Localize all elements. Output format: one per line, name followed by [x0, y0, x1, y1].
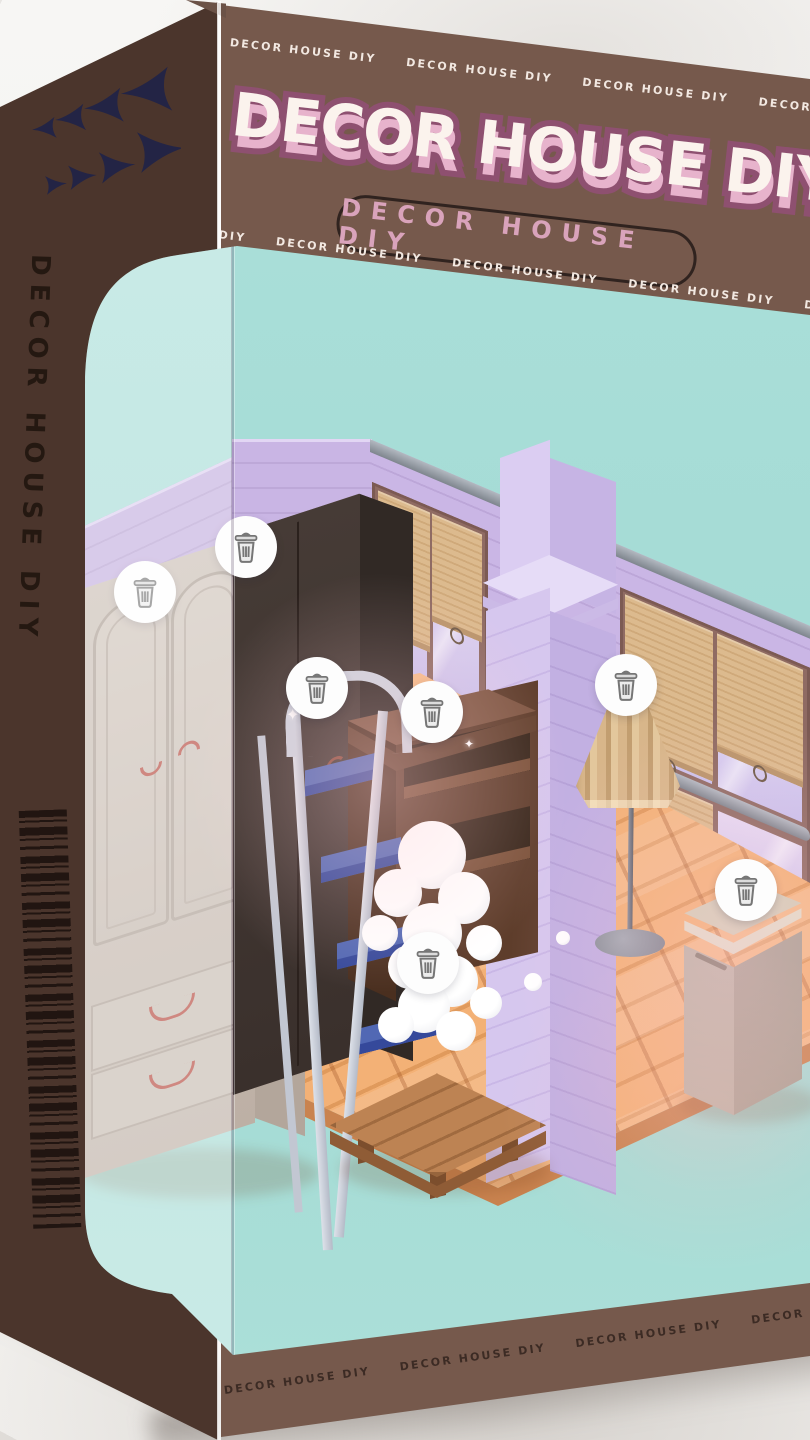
room-window: ✦ ✦ — [80, 243, 810, 1365]
delete-buttons-layer — [80, 243, 810, 1365]
trash-icon — [417, 695, 447, 729]
trash-icon — [130, 575, 160, 609]
delete-step-ladder-button[interactable] — [286, 657, 348, 719]
spine-title: DECOR HOUSE DIY — [7, 254, 55, 785]
delete-wardrobe-light-button[interactable] — [114, 561, 176, 623]
trash-icon — [302, 671, 332, 705]
arrows-decoration — [17, 66, 187, 222]
trash-icon — [611, 668, 641, 702]
trash-icon — [413, 946, 443, 980]
delete-floor-lamp-button[interactable] — [595, 654, 657, 716]
delete-desk-button[interactable] — [401, 681, 463, 743]
delete-side-table-button[interactable] — [715, 859, 777, 921]
delete-wardrobe-dark-button[interactable] — [215, 516, 277, 578]
game-package-screenshot: DECOR HOUSE DIY DECOR HOUSE DIYDECOR HOU… — [0, 0, 810, 1440]
trash-icon — [731, 873, 761, 907]
delete-coffee-table-button[interactable] — [397, 932, 459, 994]
trash-icon — [231, 530, 261, 564]
barcode — [19, 809, 82, 1228]
